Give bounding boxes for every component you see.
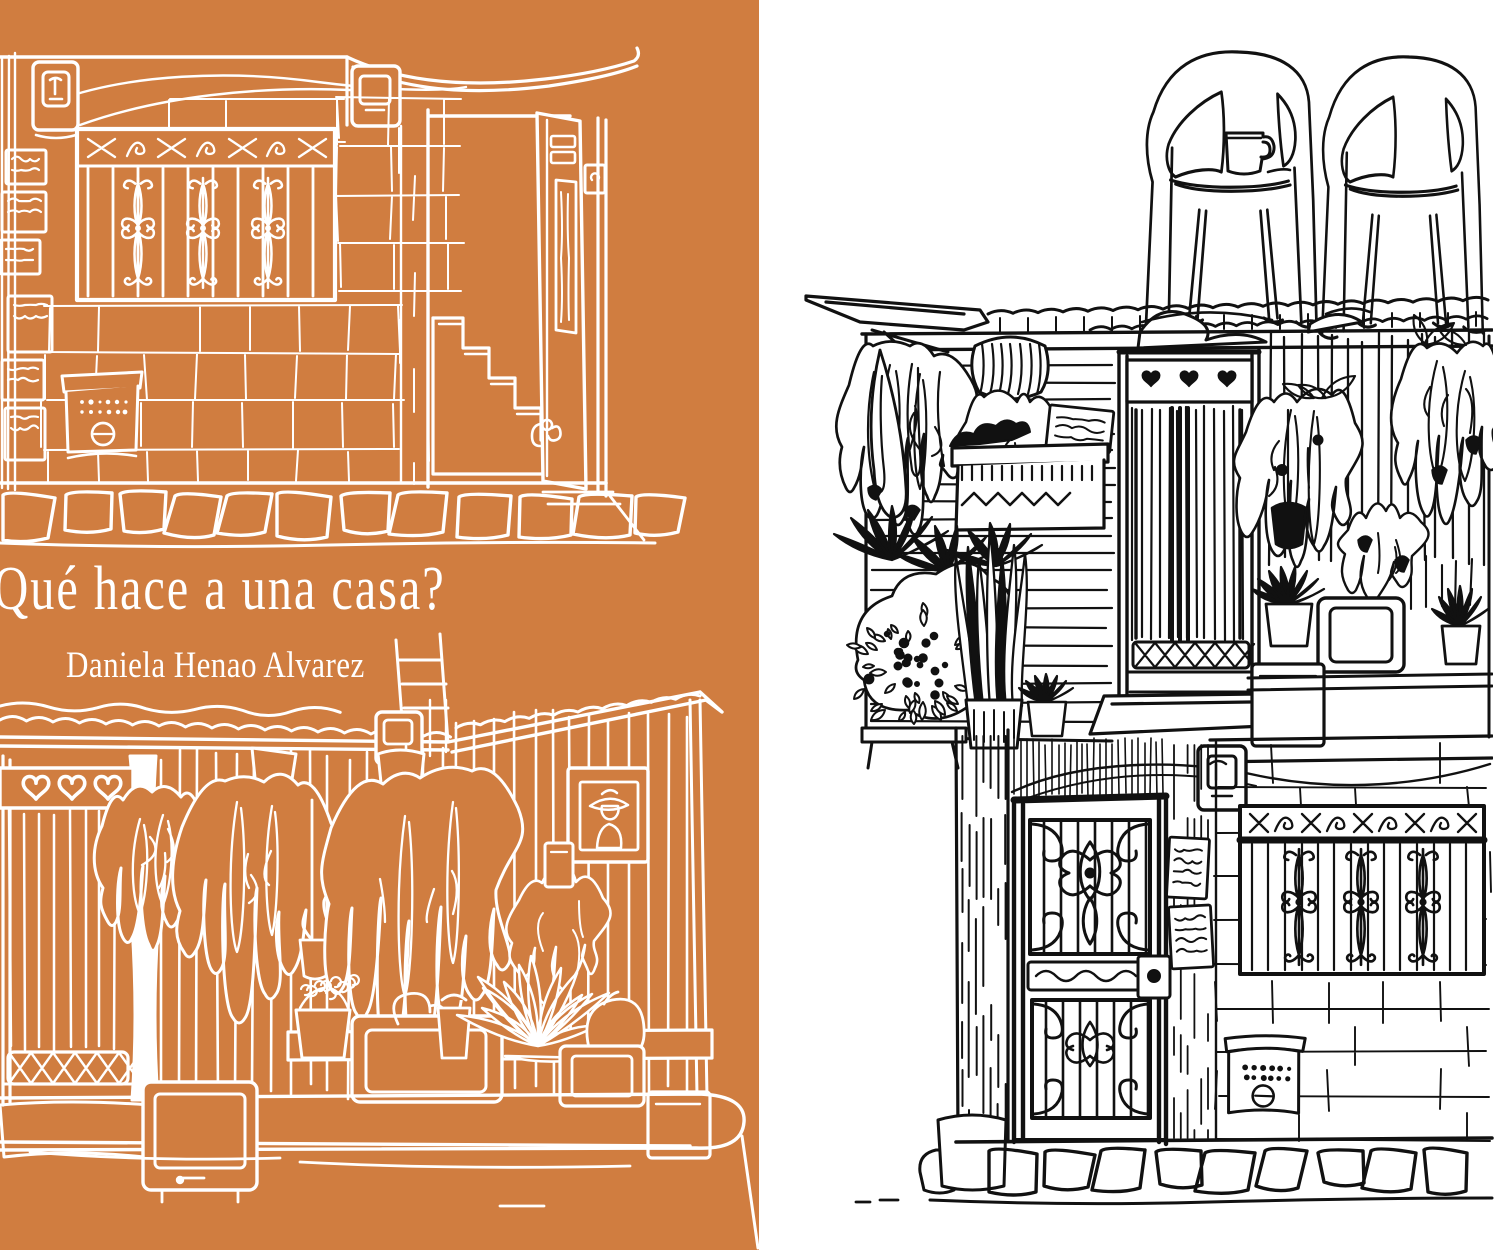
svg-text:Daniela Henao Alvarez: Daniela Henao Alvarez [66,646,365,686]
svg-text:¿Qué hace a una casa?: ¿Qué hace a una casa? [0,554,446,623]
